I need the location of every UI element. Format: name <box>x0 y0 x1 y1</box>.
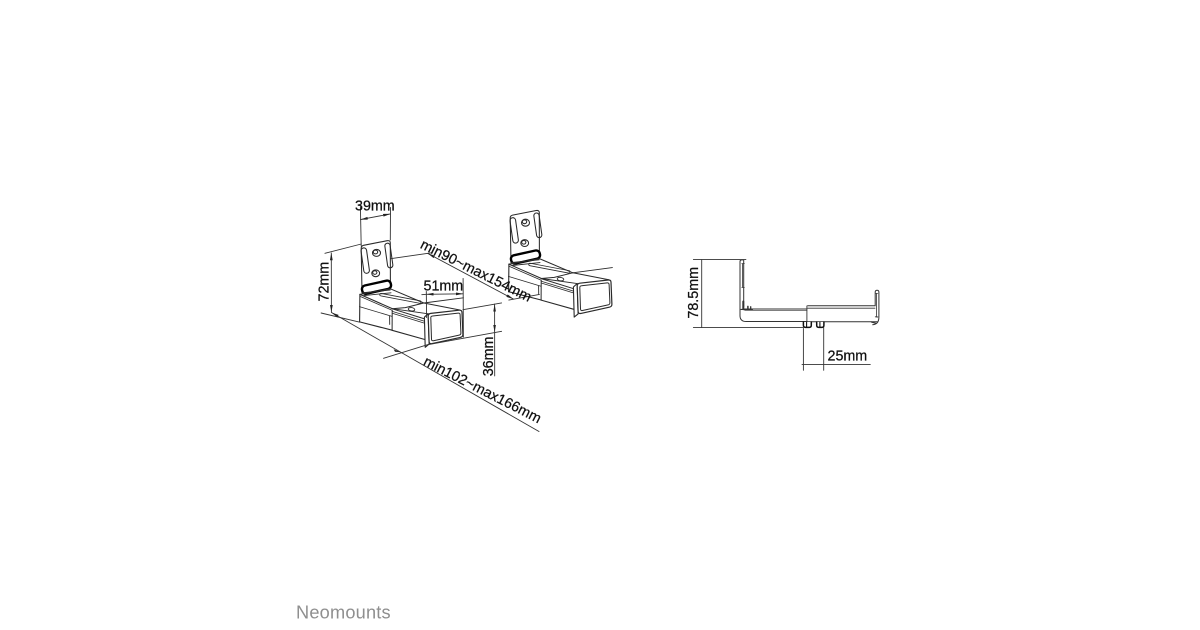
svg-text:72mm: 72mm <box>316 262 332 302</box>
svg-text:39mm: 39mm <box>355 199 395 215</box>
svg-text:51mm: 51mm <box>424 278 464 294</box>
svg-text:78.5mm: 78.5mm <box>686 267 702 319</box>
svg-text:Neomounts: Neomounts <box>296 602 391 622</box>
svg-text:36mm: 36mm <box>481 337 497 377</box>
svg-text:25mm: 25mm <box>828 349 868 365</box>
